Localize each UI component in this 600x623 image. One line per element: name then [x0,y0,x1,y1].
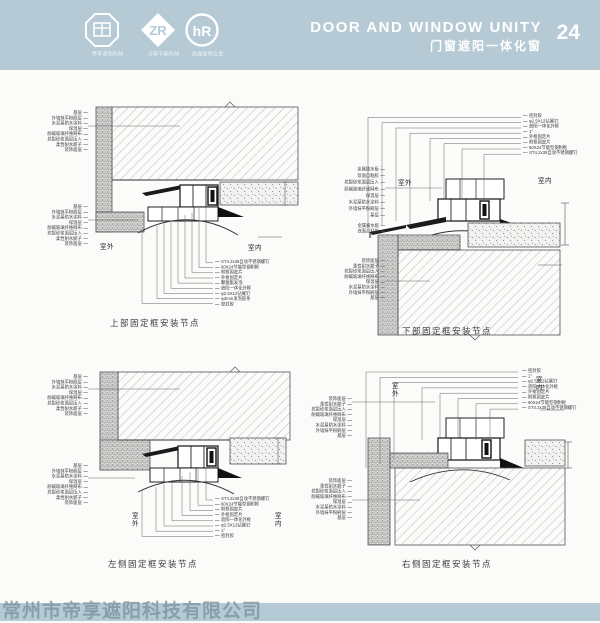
frame-annotations: ST4.2x38自攻不锈钢螺钉60X24节能型钢附框附框固定片外框固定片遮阳一体… [215,496,269,538]
annotation-label: 装饰面层 [48,500,88,505]
annotation-label: 双面自粘胶 [345,173,385,180]
indoor-label: 室内 [248,242,262,252]
annotation-label: 双面自粘胶 [358,228,385,233]
layer-annotations-upper: 装饰面层柔性耐水腻子抗裂砂浆面层压入耐碱玻璃纤维网布保温层水泥基防水涂料外墙抹平… [312,396,352,438]
logo-energy-saving: ZR 日帮节能科技 [136,12,180,66]
annotation-label: 抗裂砂浆面层压入 [345,179,385,186]
logo-caption: 帝享遮阳科技 [92,50,112,57]
header-band: 帝享遮阳科技 ZR 日帮节能科技 hR 高端窗饰五金 DOOR AND WIND… [0,0,600,70]
logo-caption: 日帮节能科技 [148,50,168,57]
frame-annotations: ST4.2x38自攻不锈钢螺钉60X24节能型钢附框附框固定片外框固定片聚氨酯发… [215,259,269,307]
logo-caption: 高端窗饰五金 [192,50,212,57]
outdoor-label: 室外 [100,241,114,251]
annotation-label: 装饰面层 [48,147,88,152]
layer-annotations-upper: 基层外墙抹平粉刷层水泥基防水涂料保温层耐碱玻璃纤维网布抗裂砂浆面层压入柔性耐水腻… [48,374,88,416]
annotation-label: ST4.2x38自攻不锈钢螺钉 [522,405,576,410]
annotation-label: 抗裂砂浆面层压入 [48,136,88,141]
page-title-chinese: 门窗遮阳一体化窗 [430,37,542,54]
annotation-label: 基层 [312,433,352,438]
layer-annotations-upper: 金属披水板双面自粘胶抗裂砂浆面层压入耐碱玻璃纤维网布保温层水泥基防水涂料外墙抹平… [345,166,385,219]
frame-annotations: 密封胶φ2.5X12钻尾钉遮阳一体化外框1°外框固定片附框固定片60X24节能型… [523,113,577,155]
detail-panel-left-fixed-frame: 基层外墙抹平粉刷层水泥基防水涂料保温层耐碱玻璃纤维网布抗裂砂浆面层压入柔性耐水腻… [30,360,300,580]
annotation-label: 基层 [345,295,385,300]
panel-caption: 左侧固定框安装节点 [88,558,218,570]
detail-panel-bottom-fixed-frame: 密封胶φ2.5X12钻尾钉遮阳一体化外框1°外框固定片附框固定片60X24节能型… [310,95,580,345]
svg-text:ZR: ZR [149,23,167,38]
annotation-label: 水泥基防水涂料 [345,284,385,289]
indoor-label: 室内 [534,376,544,392]
annotation-label: 抗裂砂浆面层压入 [48,230,88,235]
layer-annotations-lower: 基层外墙抹平粉刷层水泥基防水涂料保温层耐碱玻璃纤维网布抗裂砂浆面层压入柔性耐水腻… [48,204,88,246]
annotation-label: 水泥基防水涂料 [345,199,385,206]
outdoor-label: 室外 [398,177,412,187]
outdoor-label: 室外 [390,382,400,398]
flashing-annotations: 金属披水板双面自粘胶 [358,223,385,234]
layer-annotations-lower: 基层外墙抹平粉刷层水泥基防水涂料保温层耐碱玻璃纤维网布抗裂砂浆面层压入柔性耐水腻… [48,463,88,505]
panel-caption: 下部固定框安装节点 [382,325,512,337]
layer-annotations-lower: 装饰面层柔性耐水腻子抗裂砂浆面层压入耐碱玻璃纤维网布保温层水泥基防水涂料外墙抹平… [345,258,385,300]
detail-panel-top-fixed-frame: 基层外墙抹平粉刷层水泥基防水涂料保温层耐碱玻璃纤维网布抗裂砂浆面层压入柔性耐水腻… [30,95,300,340]
layer-annotations-lower: 装饰面层柔性耐水腻子抗裂砂浆面层压入耐碱玻璃纤维网布保温层水泥基防水涂料外墙抹平… [312,478,352,520]
indoor-label: 室内 [538,175,552,185]
logo-shading-tech: 帝享遮阳科技 [80,12,124,66]
annotation-label: 抗裂砂浆面层压入 [48,489,88,494]
logo-hardware: hR 高端窗饰五金 [180,12,224,66]
octagon-window-icon [84,12,120,48]
wall-section [378,223,560,340]
annotation-label: 水泥基防水涂料 [312,504,352,509]
annotation-label: 装饰面层 [48,241,88,246]
annotation-label: 密封胶 [215,533,269,538]
panel-caption: 右侧固定框安装节点 [382,558,512,570]
annotation-label: 水泥基防水涂料 [312,422,352,427]
annotation-label: 基层 [345,212,385,219]
annotation-label: 基层 [312,515,352,520]
detail-panel-right-fixed-frame: 密封胶1°φ2.5X12钻尾钉遮阳一体化外框外框固定片附框固定片60X24节能型… [310,360,580,580]
outdoor-label: 室外 [130,512,140,528]
page-title-english: DOOR AND WINDOW UNITY [310,19,542,36]
company-watermark: 常州市帝享遮阳科技有限公司 [2,596,262,623]
frame-annotations: 密封胶1°φ2.5X12钻尾钉遮阳一体化外框外框固定片附框固定片60X24节能型… [522,368,576,410]
panel-caption: 上部固定框安装节点 [90,317,220,329]
circle-hr-icon: hR [184,12,220,48]
layer-annotations-upper: 基层外墙抹平粉刷层水泥基防水涂料保温层耐碱玻璃纤维网布抗裂砂浆面层压入柔性耐水腻… [48,110,88,152]
annotation-label: ST4.2x38自攻不锈钢螺钉 [523,150,577,155]
annotation-label: 耐碱玻璃纤维网布 [345,186,385,193]
page-number: 24 [557,21,580,45]
annotation-label: 密封胶 [215,301,269,306]
svg-text:hR: hR [193,23,212,39]
indoor-label: 室内 [273,512,283,528]
annotation-label: 装饰面层 [48,411,88,416]
diamond-zr-icon: ZR [140,12,176,48]
annotation-label: 抗裂砂浆面层压入 [48,400,88,405]
